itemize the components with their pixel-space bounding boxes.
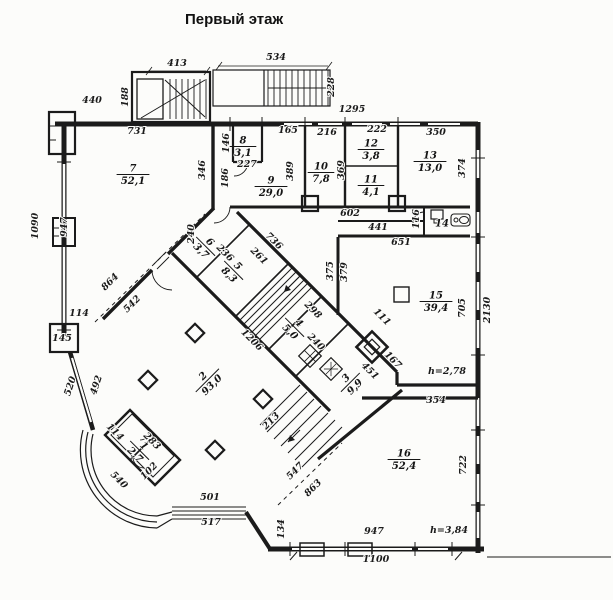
room-label: 293,0 <box>188 361 228 401</box>
dimension-label: 1295 <box>339 104 366 115</box>
dimension-label: 222 <box>366 124 387 135</box>
room-area: 29,0 <box>258 188 283 199</box>
dimension-label: 451 <box>359 360 381 382</box>
room-number: 14 <box>435 219 449 230</box>
dimension-label: 389 <box>285 161 296 181</box>
dimension-label: 369 <box>336 160 347 180</box>
dimension-label: 186 <box>220 168 231 188</box>
dimension-label: 534 <box>266 52 286 63</box>
dimension-label: 146 <box>221 133 232 153</box>
dimension-label: 864 <box>99 271 121 293</box>
dimension-label: 228 <box>326 77 337 98</box>
room-label: 107,8 <box>308 162 335 186</box>
dimension-label: 240 <box>186 224 197 245</box>
room-labels: 752,183,1929,0107,8123,8114,11313,014153… <box>117 136 453 473</box>
dimension-label: 413 <box>167 58 187 69</box>
dimension-label: h=3,84 <box>430 525 468 536</box>
room-label: 14 <box>435 219 449 230</box>
dimension-label: 1100 <box>363 554 390 565</box>
dimension-label: 350 <box>426 127 446 138</box>
room-label: 1652,4 <box>388 449 421 473</box>
room-area: 39,4 <box>424 303 448 314</box>
dimension-label: 441 <box>368 222 388 233</box>
dimension-label: 134 <box>276 519 287 539</box>
dimension-label: 492 <box>88 374 105 397</box>
dimension-label: h=2,78 <box>428 366 466 377</box>
dimension-label: 501 <box>200 492 220 503</box>
room-number: 9 <box>268 176 275 187</box>
dimension-label: 379 <box>339 262 350 282</box>
room-number: 7 <box>130 164 137 175</box>
room-label: 114,1 <box>358 175 385 199</box>
dimension-label: 167 <box>382 349 404 371</box>
dimension-label: 114 <box>69 308 89 319</box>
dimension-label: 145 <box>52 333 72 344</box>
dimension-label: 261 <box>247 245 270 268</box>
exterior-stair-top-right <box>213 62 332 106</box>
dimension-label: 375 <box>325 261 336 281</box>
dimension-label: 651 <box>391 237 411 248</box>
dimension-label: 705 <box>457 298 468 318</box>
dimension-label: 165 <box>278 125 298 136</box>
dimension-label: 111 <box>371 306 393 328</box>
dimension-label: 947 <box>59 217 70 237</box>
dimension-label: 2130 <box>482 296 493 324</box>
room-number: 15 <box>429 291 443 302</box>
floor-plan-page: Первый этаж <box>0 0 613 600</box>
dimension-label: 1090 <box>30 212 41 239</box>
room-area: 7,8 <box>312 174 329 185</box>
dimension-label: 298 <box>301 299 324 322</box>
room-number: 11 <box>364 175 378 186</box>
dimension-label: 947 <box>364 526 384 537</box>
dimension-label: 863 <box>302 477 324 499</box>
dimension-label: 517 <box>201 517 221 528</box>
dimension-label: 116 <box>411 209 422 229</box>
dimension-label: 722 <box>458 455 469 475</box>
room-number: 12 <box>364 139 378 150</box>
room-area: 3,1 <box>234 148 251 159</box>
room-area: 3,8 <box>362 151 379 162</box>
room-area: 4,1 <box>362 187 379 198</box>
room-label: 1539,4 <box>420 291 453 315</box>
room-label: 123,8 <box>358 139 385 163</box>
room-area: 52,4 <box>392 461 416 472</box>
dimension-label: 440 <box>82 95 102 106</box>
dimension-label: 102 <box>138 460 160 482</box>
floor-plan-drawing: 4131884405342281295731165216222350346146… <box>0 0 613 600</box>
room-number: 16 <box>397 449 411 460</box>
dimension-label: 540 <box>108 469 130 491</box>
room-area: 52,1 <box>121 176 145 187</box>
room-label: 752,1 <box>117 164 150 188</box>
dimension-label: 520 <box>62 375 79 398</box>
dimension-label: 731 <box>127 126 147 137</box>
room-number: 10 <box>314 162 328 173</box>
room-label: 929,0 <box>255 176 288 200</box>
dimension-label: 346 <box>197 160 208 180</box>
dimension-label: 227 <box>236 159 257 170</box>
dimension-label: 736 <box>263 230 285 252</box>
dimension-label: 354 <box>426 395 446 406</box>
dimension-label: 602 <box>340 208 360 219</box>
dimension-label: 547 <box>284 460 306 482</box>
room-number: 8 <box>240 136 247 147</box>
dimension-label: 213 <box>260 410 283 433</box>
room-number: 13 <box>423 151 437 162</box>
dimension-label: 374 <box>457 158 468 178</box>
room-label: 1313,0 <box>414 151 447 175</box>
room-area: 13,0 <box>418 163 442 174</box>
dimension-label: 188 <box>120 87 131 107</box>
exterior-stair-top-left <box>132 67 210 122</box>
dimension-label: 216 <box>316 127 337 138</box>
dimension-label: 114 <box>104 421 126 443</box>
